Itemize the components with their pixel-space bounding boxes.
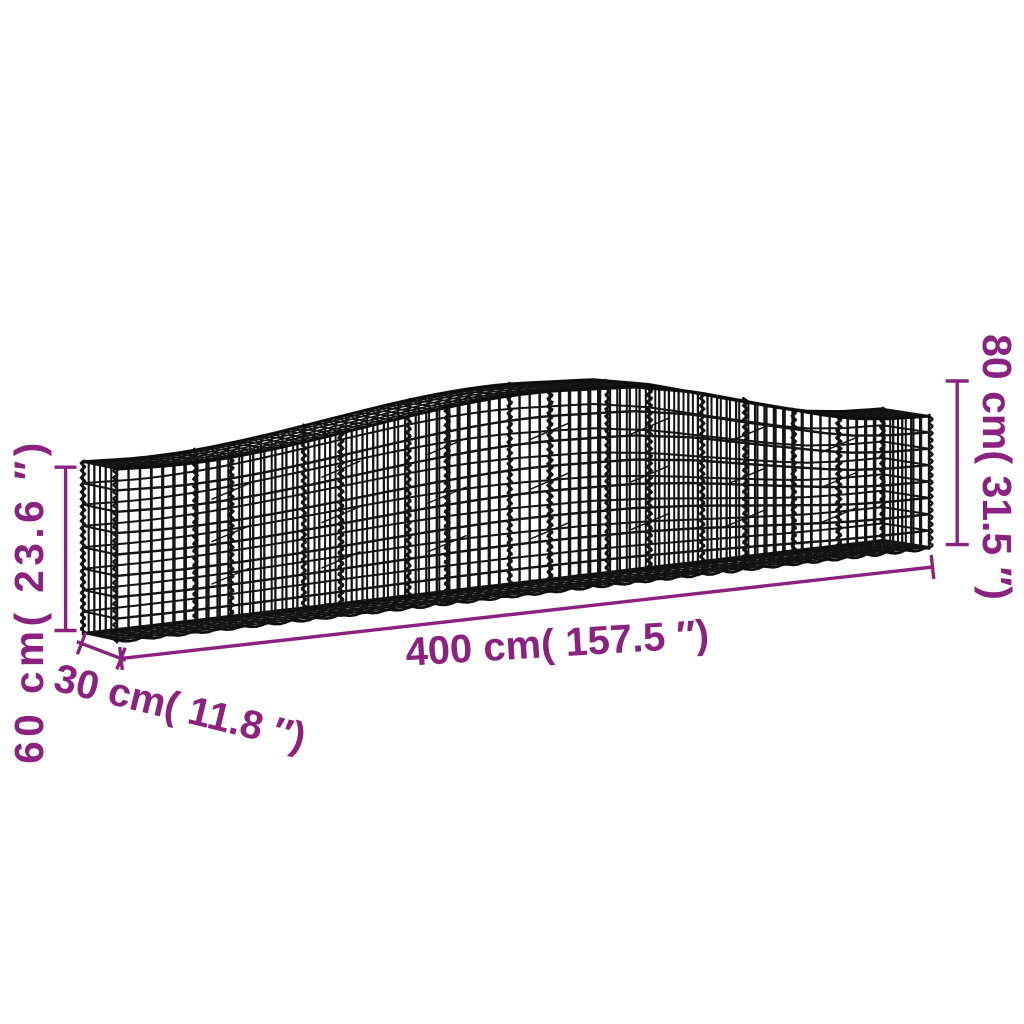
svg-text:30 cm( 11.8 ″): 30 cm( 11.8 ″)	[50, 656, 310, 760]
svg-text:80 cm( 31.5 ″): 80 cm( 31.5 ″)	[974, 334, 1020, 600]
svg-text:60 cm( 23.6 ″): 60 cm( 23.6 ″)	[6, 438, 52, 764]
